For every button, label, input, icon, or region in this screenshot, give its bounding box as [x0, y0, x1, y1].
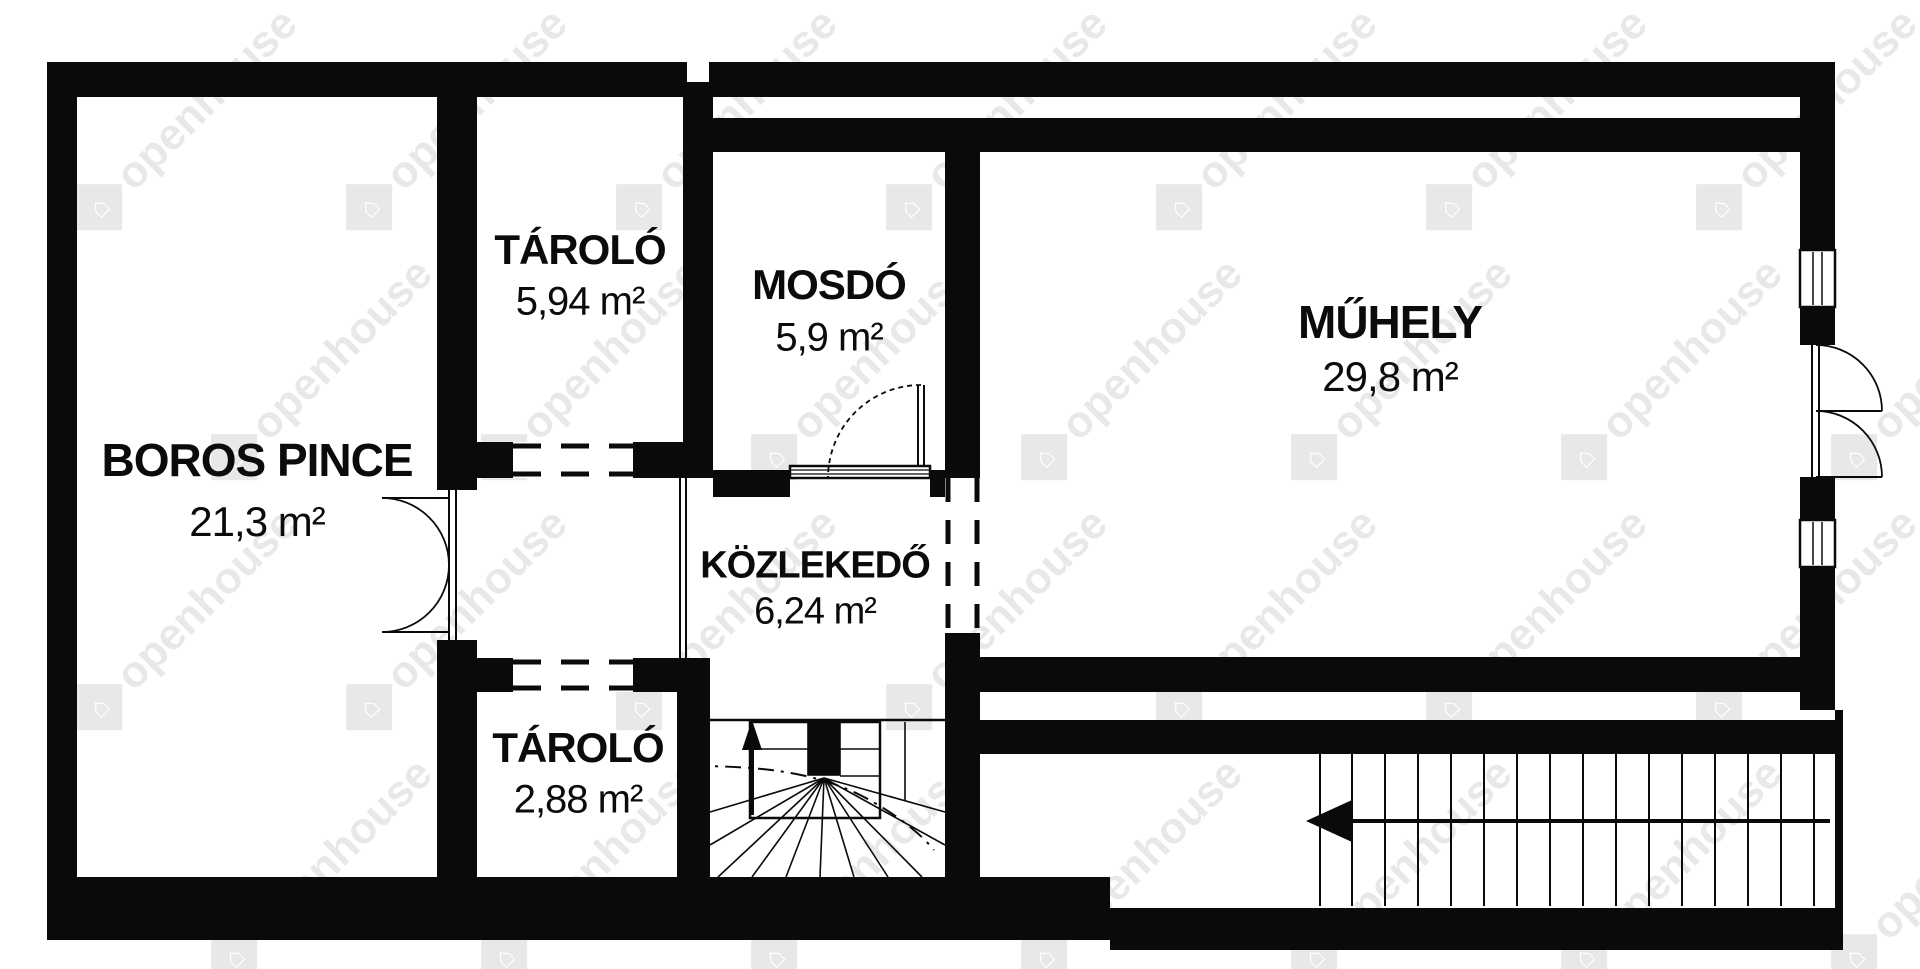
room-label-tarolo-felso: TÁROLÓ: [494, 226, 665, 274]
wall-storage2-top-right: [633, 658, 710, 692]
wall-storage1-bottom-left: [477, 442, 513, 478]
room-name: KÖZLEKEDŐ: [700, 545, 930, 587]
room-area: 5,94 m²: [516, 280, 645, 324]
top-wall-notch: [687, 62, 709, 82]
wall-washroom-bottom-left: [713, 470, 790, 497]
room-area-tarolo-felso: 5,94 m²: [516, 280, 645, 325]
straight-staircase: [1306, 754, 1830, 906]
room-area-kozlekedo: 6,24 m²: [754, 591, 876, 634]
room-area-muhely: 29,8 m²: [1322, 353, 1457, 401]
cellar-double-door: [382, 490, 456, 640]
room-area: 5,9 m²: [775, 316, 882, 360]
workshop-window-upper: [1800, 250, 1835, 307]
room-name: BOROS PINCE: [101, 434, 412, 486]
room-area: 2,88 m²: [514, 778, 643, 822]
room-label-boros-pince: BOROS PINCE: [101, 433, 412, 487]
room-label-tarolo-also: TÁROLÓ: [492, 724, 663, 772]
wall-washroom-workshop-top: [713, 118, 1800, 152]
workshop-exterior-double-door: [1812, 345, 1882, 477]
washroom-door: [790, 385, 930, 478]
room-name: MŰHELY: [1298, 296, 1482, 348]
room-name: TÁROLÓ: [492, 724, 663, 771]
outer-wall-right-pier1: [1800, 307, 1835, 345]
room-area: 21,3 m²: [189, 498, 324, 545]
outer-wall-top: [47, 62, 1835, 97]
room-name: TÁROLÓ: [494, 226, 665, 273]
wall-washroom-workshop-divider: [945, 152, 980, 478]
room-label-mosdo: MOSDÓ: [752, 261, 906, 309]
room-area: 29,8 m²: [1322, 353, 1457, 400]
room-area-boros-pince: 21,3 m²: [189, 498, 324, 546]
wall-cellar-storage-divider-upper: [437, 97, 477, 490]
winder-staircase: [686, 720, 945, 877]
outer-wall-right-upper: [1800, 62, 1835, 250]
wall-corridor-right: [945, 633, 980, 877]
wall-cellar-divider-lower: [437, 640, 477, 877]
outer-wall-bottom-right: [1110, 908, 1843, 950]
wall-storage1-bottom-right: [633, 442, 683, 478]
outer-wall-right-pier2: [1800, 477, 1835, 520]
wall-workshop-bottom-bar1: [980, 657, 1835, 692]
workshop-window-lower: [1800, 520, 1835, 567]
room-label-kozlekedo: KÖZLEKEDŐ: [700, 545, 930, 588]
corridor-partition: [680, 478, 686, 658]
wall-storage2-top-left: [477, 658, 513, 692]
outer-wall-bottom-left: [47, 877, 1110, 940]
room-name: MOSDÓ: [752, 261, 906, 308]
room-area: 6,24 m²: [754, 591, 876, 633]
wall-workshop-bottom-bar2: [980, 720, 1843, 754]
outer-wall-left: [47, 62, 77, 940]
room-area-tarolo-also: 2,88 m²: [514, 778, 643, 823]
stair-newel-post: [808, 722, 840, 775]
room-label-muhely: MŰHELY: [1298, 295, 1482, 349]
floor-plan-canvas: ⌂openhouse⌂openhouse⌂openhouse⌂openhouse…: [0, 0, 1920, 969]
wall-storage-washroom-divider: [683, 97, 713, 478]
room-area-mosdo: 5,9 m²: [775, 316, 882, 361]
wall-washroom-bottom-right: [930, 470, 945, 497]
